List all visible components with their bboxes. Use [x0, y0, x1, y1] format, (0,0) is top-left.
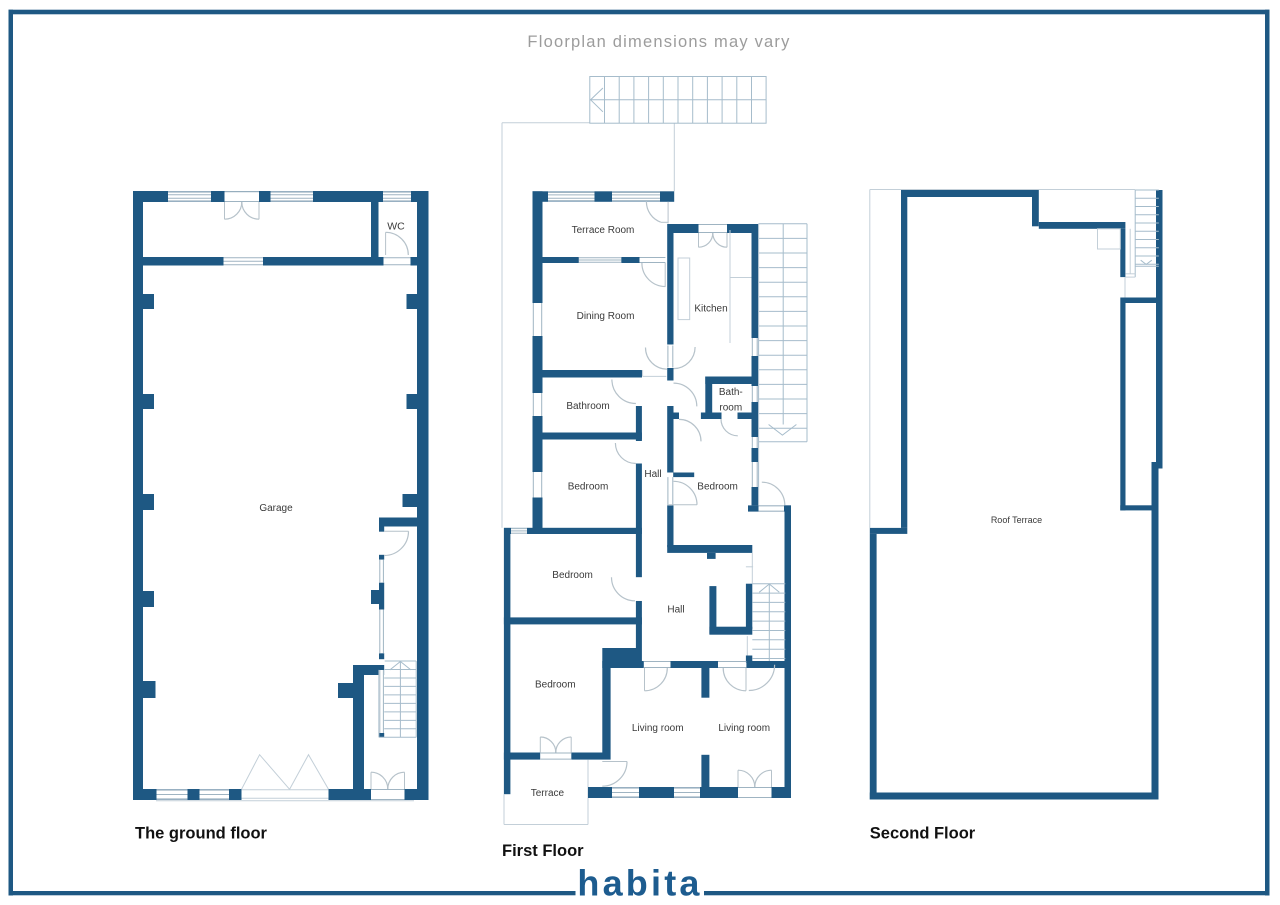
svg-text:Dining Room: Dining Room [577, 311, 635, 322]
svg-text:room: room [719, 403, 742, 414]
svg-text:Hall: Hall [667, 605, 684, 616]
svg-text:Roof Terrace: Roof Terrace [991, 515, 1042, 525]
svg-text:Terrace: Terrace [531, 788, 565, 799]
svg-text:Bedroom: Bedroom [697, 482, 738, 493]
svg-text:The ground floor: The ground floor [135, 825, 268, 843]
svg-text:habita: habita [577, 863, 702, 904]
svg-text:Garage: Garage [259, 503, 293, 514]
svg-text:Bath-: Bath- [719, 387, 743, 398]
svg-text:Bedroom: Bedroom [568, 482, 609, 493]
svg-text:Second Floor: Second Floor [870, 825, 976, 843]
svg-text:Terrace Room: Terrace Room [572, 225, 635, 236]
svg-text:WC: WC [387, 221, 405, 233]
svg-text:Living room: Living room [632, 723, 684, 734]
svg-text:Floorplan dimensions may vary: Floorplan dimensions may vary [527, 33, 790, 51]
svg-text:Bedroom: Bedroom [535, 680, 576, 691]
svg-text:First Floor: First Floor [502, 842, 584, 860]
svg-text:Bedroom: Bedroom [552, 570, 593, 581]
svg-text:Bathroom: Bathroom [566, 401, 609, 412]
svg-text:Living room: Living room [718, 723, 770, 734]
svg-text:Hall: Hall [644, 469, 661, 480]
svg-text:Kitchen: Kitchen [694, 304, 727, 315]
